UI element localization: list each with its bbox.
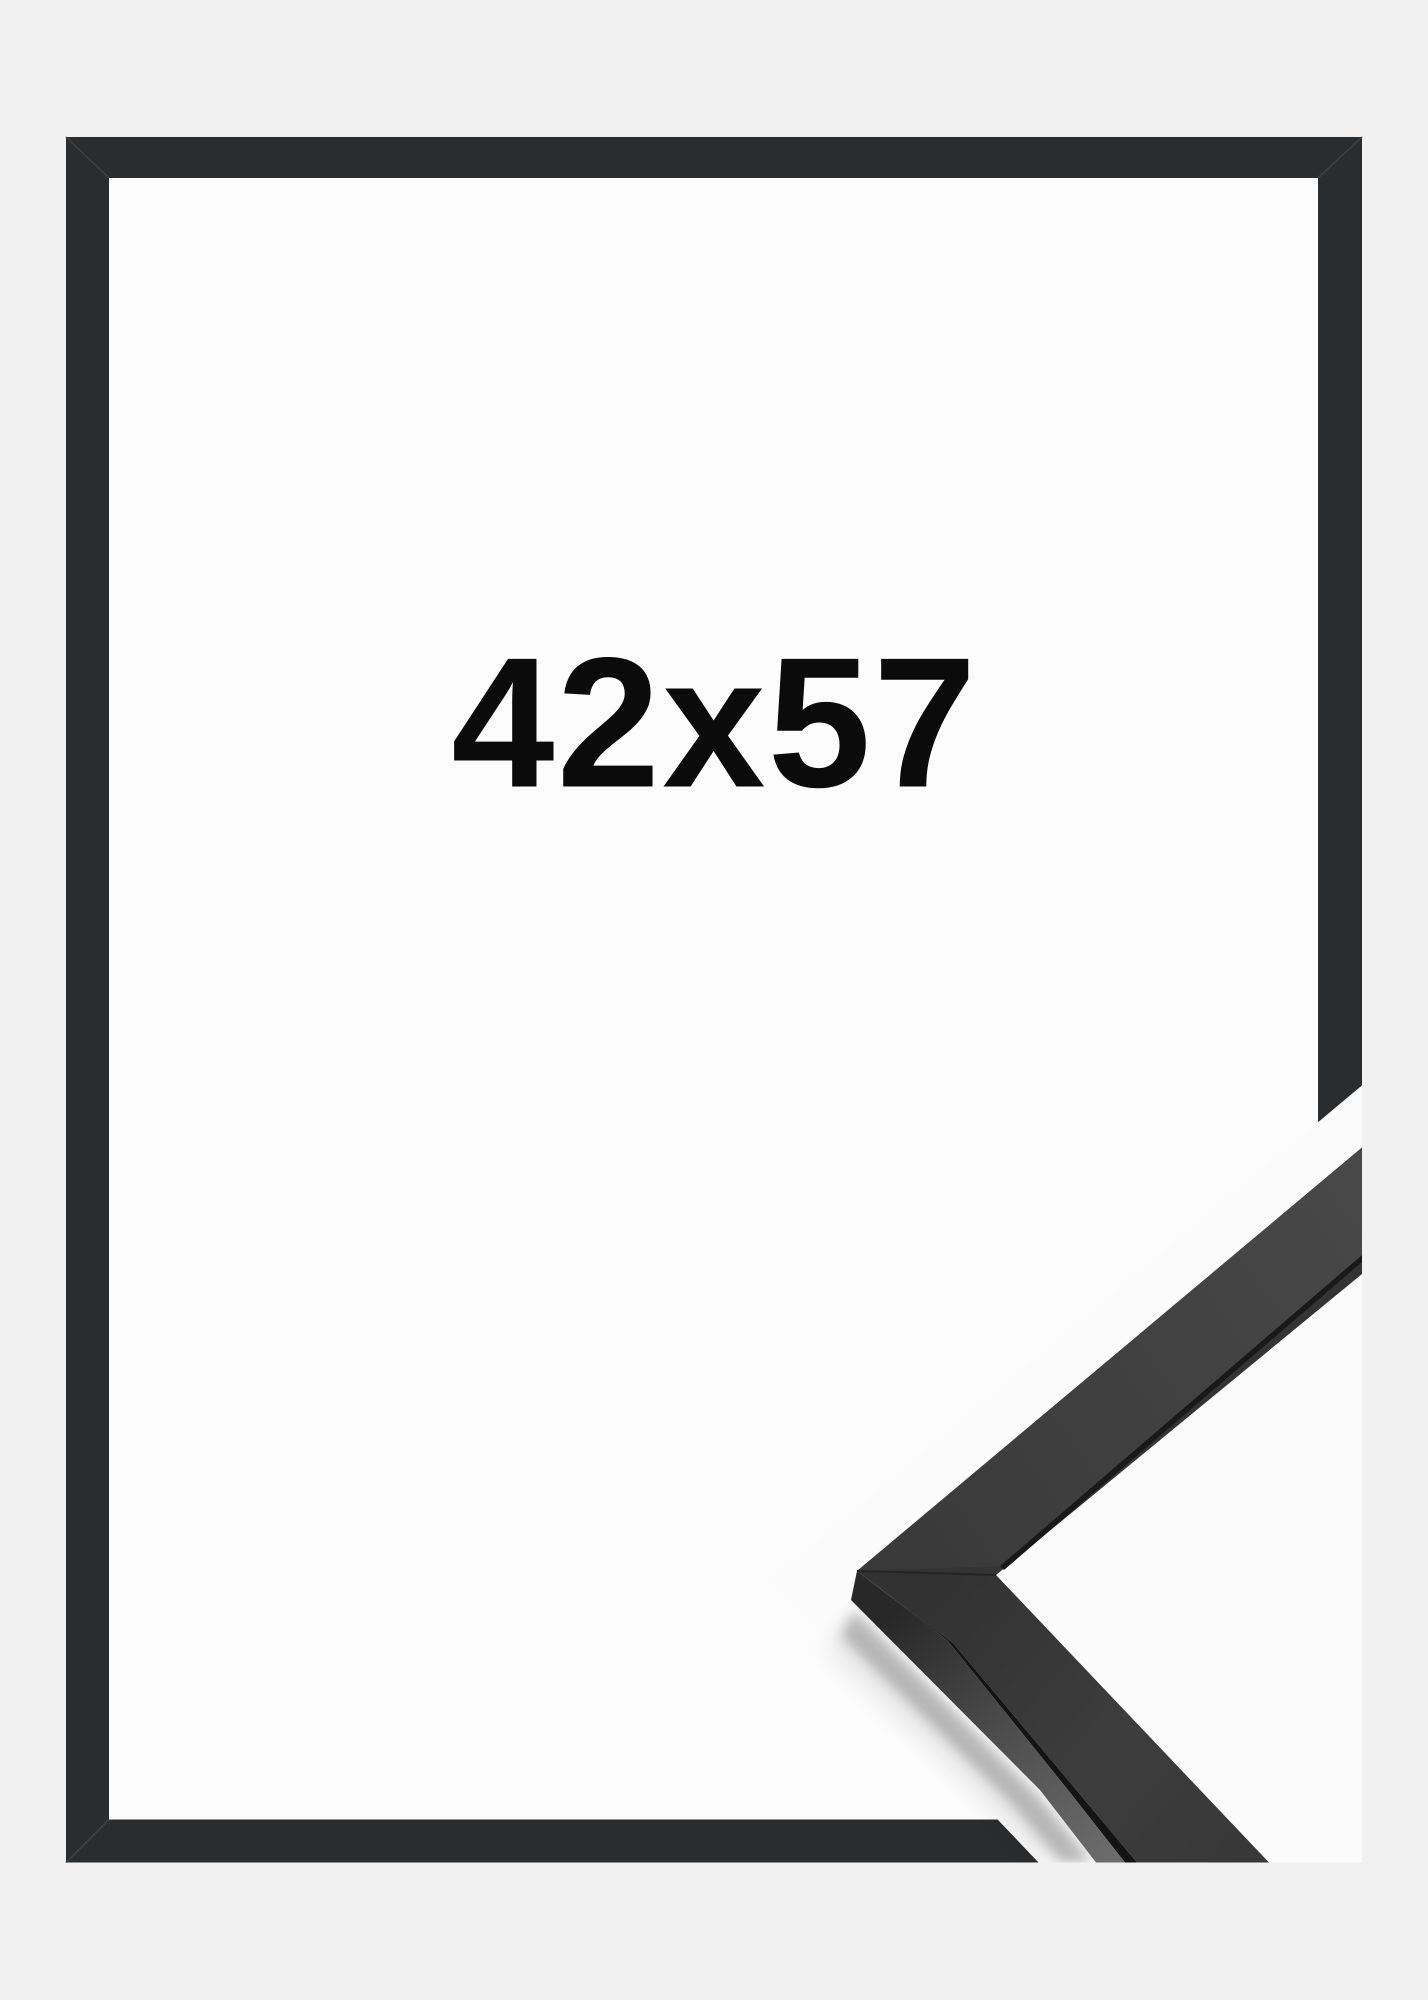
svg-text:42x57: 42x57 — [451, 620, 978, 827]
